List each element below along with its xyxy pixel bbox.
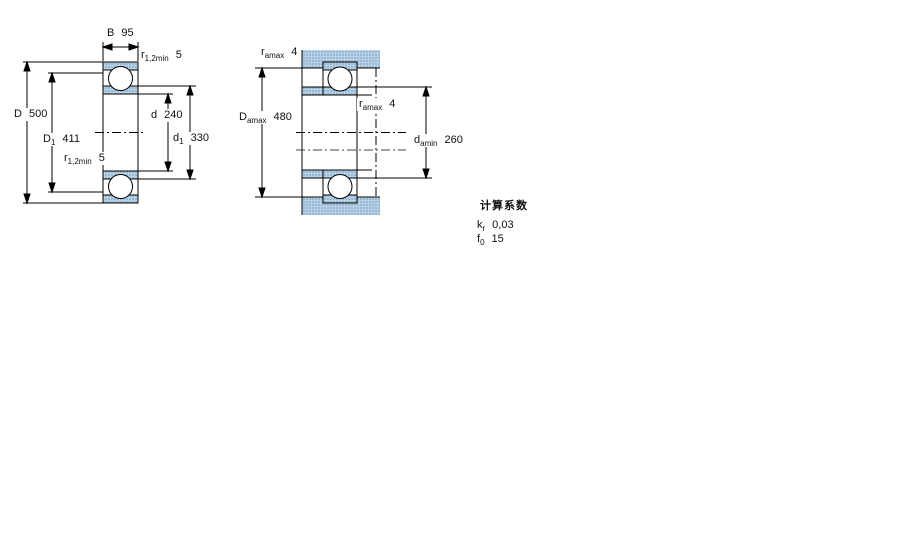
label-B: B95 — [107, 27, 134, 40]
label-D: D500 — [12, 108, 49, 121]
technical-drawing-canvas — [0, 0, 900, 560]
ball-top — [109, 67, 133, 91]
bearing-datasheet-figure: B95 r1,2min5 D500 D1411 r1,2min5 d240 d1… — [0, 0, 900, 560]
arrow-damin-top — [423, 87, 429, 96]
arrow-D-top — [24, 62, 30, 71]
mounted-ball-top — [328, 67, 352, 91]
arrow-B-left — [103, 44, 112, 50]
bearing-section-drawing — [95, 62, 146, 203]
arrow-d-top — [165, 94, 171, 103]
arrow-d1-bottom — [187, 170, 193, 179]
label-D1: D1411 — [41, 133, 82, 146]
factor-kr: kr0,03 — [477, 219, 514, 231]
arrow-d1-top — [187, 86, 193, 95]
label-d: d240 — [149, 109, 184, 122]
calculation-factors-heading: 计算系数 — [480, 197, 528, 213]
arrow-Damax-top — [259, 68, 265, 77]
shaft-shoulder-bottom-hatch — [302, 170, 323, 178]
factor-f0: f015 — [477, 233, 504, 245]
shaft-shoulder-top-hatch — [302, 87, 323, 95]
arrow-damin-bottom — [423, 169, 429, 178]
arrow-D1-bottom — [49, 183, 55, 192]
label-r12min-bottom: r1,2min5 — [62, 152, 107, 165]
mounted-ball-bottom — [328, 175, 352, 199]
mounting-drawing — [255, 50, 432, 215]
label-damin: damin260 — [412, 134, 465, 147]
arrow-B-right — [129, 44, 138, 50]
label-r12min-top: r1,2min5 — [141, 49, 182, 62]
label-B-value: 95 — [121, 27, 133, 39]
arrow-Damax-bottom — [259, 188, 265, 197]
arrow-D1-top — [49, 73, 55, 82]
arrow-d-bottom — [165, 162, 171, 171]
label-ramax-mid: ramax4 — [357, 98, 397, 111]
label-B-symbol: B — [107, 27, 114, 39]
label-Damax: Damax480 — [237, 111, 294, 124]
ball-bottom — [109, 175, 133, 199]
label-ramax-top: ramax4 — [261, 46, 297, 59]
label-d1: d1330 — [171, 132, 211, 145]
arrow-D-bottom — [24, 194, 30, 203]
